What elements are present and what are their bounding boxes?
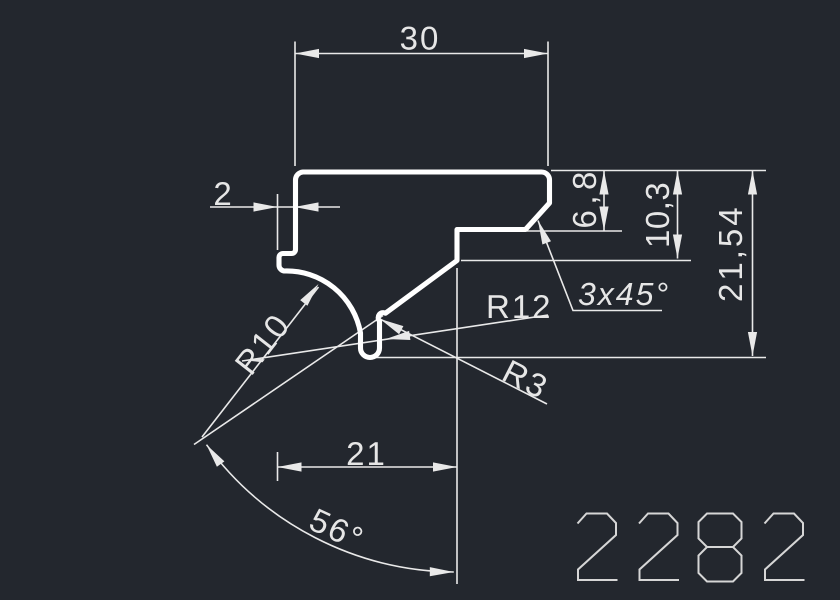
svg-text:3x45°: 3x45° <box>578 276 670 312</box>
svg-text:21,54: 21,54 <box>712 204 749 302</box>
svg-text:10,3: 10,3 <box>639 182 676 248</box>
svg-text:30: 30 <box>400 19 441 56</box>
svg-text:6,8: 6,8 <box>566 166 603 228</box>
svg-text:2: 2 <box>213 175 233 212</box>
svg-text:21: 21 <box>346 435 387 472</box>
svg-text:R12: R12 <box>486 288 553 325</box>
